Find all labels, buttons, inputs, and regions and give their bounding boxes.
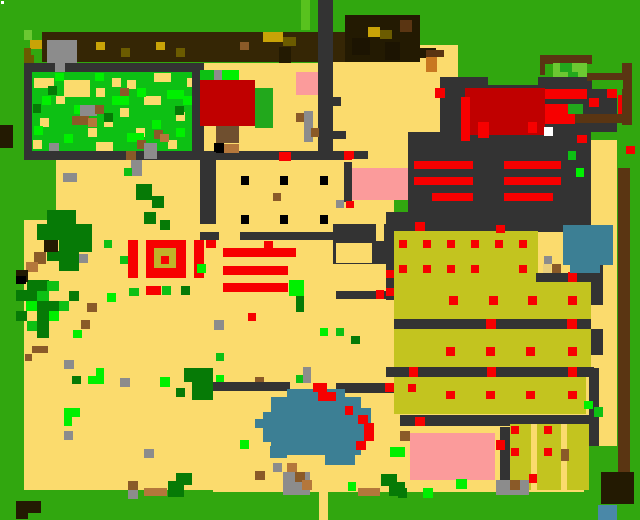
map-tile bbox=[313, 383, 327, 392]
map-tile bbox=[81, 320, 90, 329]
map-tile bbox=[37, 224, 92, 240]
map-tile bbox=[352, 159, 408, 168]
map-tile bbox=[120, 256, 128, 264]
map-tile bbox=[386, 288, 394, 296]
map-tile bbox=[561, 449, 569, 461]
map-tile bbox=[456, 479, 467, 489]
map-tile bbox=[112, 78, 121, 87]
map-tile bbox=[333, 208, 354, 224]
map-tile bbox=[426, 50, 444, 57]
map-tile bbox=[486, 347, 495, 356]
map-tile bbox=[64, 408, 72, 426]
map-tile bbox=[96, 142, 113, 151]
map-tile bbox=[48, 86, 57, 95]
map-tile bbox=[273, 463, 282, 472]
map-tile bbox=[364, 433, 374, 441]
map-tile bbox=[545, 89, 587, 99]
map-tile bbox=[197, 264, 206, 273]
map-tile bbox=[489, 296, 498, 305]
map-tile bbox=[200, 152, 216, 224]
map-tile bbox=[303, 367, 311, 383]
map-tile bbox=[386, 270, 394, 278]
map-tile bbox=[526, 347, 535, 356]
map-tile bbox=[64, 134, 73, 143]
map-tile bbox=[248, 313, 256, 321]
map-tile bbox=[200, 80, 255, 126]
map-tile bbox=[376, 290, 384, 299]
map-tile bbox=[72, 376, 81, 384]
map-tile bbox=[399, 265, 407, 273]
map-tile bbox=[95, 105, 104, 114]
map-tile bbox=[72, 116, 89, 125]
map-tile bbox=[358, 488, 380, 496]
map-tile bbox=[544, 256, 552, 264]
map-tile bbox=[175, 106, 184, 115]
map-tile bbox=[27, 321, 37, 331]
map-tile bbox=[568, 367, 577, 377]
map-tile bbox=[176, 48, 185, 57]
map-tile bbox=[64, 80, 90, 97]
map-tile bbox=[240, 42, 249, 50]
map-tile bbox=[414, 177, 473, 185]
map-tile bbox=[500, 427, 510, 482]
map-tile bbox=[107, 293, 116, 302]
map-tile bbox=[34, 126, 43, 135]
map-tile bbox=[162, 286, 171, 295]
map-tile bbox=[568, 347, 577, 356]
map-tile bbox=[311, 128, 319, 137]
map-tile bbox=[560, 63, 572, 72]
map-tile bbox=[364, 423, 374, 433]
map-tile bbox=[44, 240, 58, 252]
map-tile bbox=[96, 88, 105, 97]
map-tile bbox=[104, 113, 113, 122]
map-tile bbox=[42, 32, 345, 62]
map-tile bbox=[432, 193, 473, 201]
map-tile bbox=[345, 406, 353, 415]
map-tile bbox=[598, 505, 617, 520]
map-tile bbox=[160, 134, 169, 142]
map-tile bbox=[176, 128, 185, 137]
map-tile bbox=[304, 111, 313, 142]
map-tile bbox=[126, 151, 136, 160]
map-tile bbox=[414, 161, 473, 169]
map-tile bbox=[426, 57, 437, 72]
map-tile bbox=[543, 264, 551, 273]
map-tile bbox=[568, 151, 576, 160]
map-tile bbox=[63, 173, 77, 182]
map-tile bbox=[154, 73, 171, 82]
map-tile bbox=[25, 354, 32, 361]
map-tile bbox=[104, 240, 112, 248]
map-tile bbox=[192, 382, 213, 400]
map-tile bbox=[544, 448, 552, 456]
map-tile bbox=[446, 347, 455, 356]
map-tile bbox=[137, 88, 146, 97]
map-tile bbox=[152, 196, 164, 208]
map-tile bbox=[112, 96, 129, 105]
map-tile bbox=[540, 55, 545, 75]
map-tile bbox=[64, 431, 73, 440]
map-tile bbox=[168, 481, 184, 497]
map-tile bbox=[389, 482, 405, 496]
map-tile bbox=[486, 391, 495, 399]
map-tile bbox=[528, 122, 537, 133]
map-tile bbox=[56, 96, 65, 104]
map-tile bbox=[320, 328, 328, 336]
map-tile bbox=[241, 176, 249, 185]
map-tile bbox=[24, 63, 204, 72]
map-tile bbox=[348, 482, 356, 491]
map-tile bbox=[16, 509, 28, 519]
map-tile bbox=[591, 329, 603, 355]
map-tile bbox=[296, 72, 318, 95]
map-tile bbox=[283, 37, 296, 46]
map-tile bbox=[325, 449, 355, 465]
map-tile bbox=[519, 265, 527, 273]
map-tile bbox=[545, 114, 575, 124]
map-tile bbox=[144, 212, 156, 224]
map-tile bbox=[488, 77, 538, 85]
map-tile bbox=[255, 471, 265, 480]
map-tile bbox=[183, 96, 192, 105]
map-tile bbox=[49, 311, 59, 321]
map-tile bbox=[318, 392, 336, 401]
map-tile bbox=[415, 417, 425, 426]
map-tile bbox=[526, 391, 535, 399]
map-tile bbox=[504, 193, 553, 201]
map-tile bbox=[495, 240, 503, 248]
map-tile bbox=[575, 114, 632, 123]
map-tile bbox=[510, 480, 520, 490]
map-tile bbox=[279, 47, 291, 63]
map-tile bbox=[302, 480, 312, 490]
map-tile bbox=[423, 488, 433, 498]
map-tile bbox=[447, 265, 455, 273]
map-tile bbox=[223, 248, 296, 257]
map-tile bbox=[160, 220, 170, 230]
map-tile bbox=[96, 42, 105, 50]
map-tile bbox=[160, 377, 170, 387]
map-tile bbox=[73, 330, 82, 338]
map-tile bbox=[601, 472, 634, 504]
map-tile bbox=[42, 96, 51, 105]
map-tile bbox=[214, 320, 224, 330]
map-tile bbox=[263, 32, 283, 42]
map-tile bbox=[423, 265, 431, 273]
map-tile bbox=[69, 291, 79, 301]
map-tile bbox=[16, 290, 37, 301]
map-tile bbox=[121, 48, 130, 57]
map-tile bbox=[607, 88, 617, 98]
map-tile bbox=[124, 168, 132, 176]
map-tile bbox=[408, 384, 416, 392]
map-tile bbox=[72, 408, 80, 417]
map-tile bbox=[376, 224, 384, 241]
map-tile bbox=[37, 291, 49, 301]
map-tile bbox=[216, 353, 224, 361]
map-tile bbox=[320, 215, 328, 224]
map-tile bbox=[380, 30, 392, 39]
map-tile bbox=[336, 243, 372, 263]
map-tile bbox=[319, 468, 328, 520]
map-tile bbox=[33, 140, 42, 149]
map-tile bbox=[200, 70, 214, 80]
map-tile bbox=[187, 78, 192, 87]
map-tile bbox=[394, 231, 538, 320]
map-tile bbox=[279, 450, 287, 458]
map-tile bbox=[446, 391, 455, 399]
map-tile bbox=[144, 96, 161, 105]
map-tile bbox=[59, 301, 69, 311]
map-tile bbox=[79, 254, 88, 263]
map-tile bbox=[478, 122, 489, 138]
map-tile bbox=[161, 256, 169, 264]
map-tile bbox=[435, 88, 445, 98]
map-tile bbox=[368, 27, 380, 37]
map-tile bbox=[400, 431, 410, 441]
map-tile bbox=[333, 160, 344, 202]
map-tile bbox=[279, 152, 291, 161]
map-tile bbox=[594, 407, 603, 417]
map-tile bbox=[184, 368, 213, 382]
map-tile bbox=[351, 336, 360, 344]
game-map[interactable] bbox=[0, 0, 640, 520]
map-tile bbox=[511, 448, 519, 456]
map-tile bbox=[471, 265, 479, 273]
map-tile bbox=[568, 391, 577, 399]
map-tile bbox=[568, 272, 577, 282]
map-tile bbox=[626, 146, 635, 154]
map-tile bbox=[146, 286, 161, 295]
map-tile bbox=[95, 73, 104, 81]
map-tile bbox=[181, 286, 190, 295]
map-tile bbox=[280, 215, 288, 224]
map-tile bbox=[144, 488, 167, 496]
map-tile bbox=[219, 232, 240, 240]
map-tile bbox=[576, 168, 584, 177]
map-tile bbox=[59, 240, 69, 271]
map-tile bbox=[176, 388, 185, 397]
map-tile bbox=[55, 73, 64, 81]
map-tile bbox=[144, 143, 157, 159]
map-tile bbox=[88, 118, 97, 127]
map-tile bbox=[167, 90, 184, 99]
map-tile bbox=[529, 474, 537, 483]
map-tile bbox=[213, 382, 290, 391]
map-tile bbox=[223, 266, 288, 275]
map-tile bbox=[544, 426, 552, 434]
map-tile bbox=[32, 346, 48, 353]
map-tile bbox=[16, 311, 27, 321]
map-tile bbox=[385, 383, 394, 392]
map-tile bbox=[24, 72, 32, 160]
map-tile bbox=[30, 40, 42, 49]
map-tile bbox=[591, 200, 617, 225]
map-tile bbox=[296, 296, 304, 312]
map-tile bbox=[568, 72, 578, 77]
map-tile bbox=[240, 440, 249, 449]
map-tile bbox=[289, 280, 304, 296]
map-tile bbox=[16, 276, 26, 284]
map-tile bbox=[241, 215, 249, 224]
map-tile bbox=[64, 360, 74, 369]
map-tile bbox=[486, 319, 496, 329]
map-tile bbox=[410, 433, 495, 480]
map-tile bbox=[128, 240, 138, 278]
map-tile bbox=[563, 225, 613, 265]
map-tile bbox=[589, 98, 599, 107]
map-tile bbox=[47, 210, 76, 224]
map-tile bbox=[385, 42, 400, 60]
map-tile bbox=[263, 412, 271, 442]
map-tile bbox=[496, 440, 505, 450]
map-tile bbox=[33, 104, 41, 113]
map-tile bbox=[47, 281, 59, 291]
map-tile bbox=[552, 264, 561, 273]
map-tile bbox=[567, 319, 577, 329]
map-tile bbox=[255, 88, 273, 128]
map-tile bbox=[519, 240, 527, 248]
map-tile bbox=[449, 296, 458, 305]
map-tile bbox=[570, 265, 600, 273]
map-tile bbox=[415, 222, 425, 231]
map-tile bbox=[120, 108, 129, 117]
map-tile bbox=[144, 449, 154, 458]
map-tile bbox=[409, 367, 418, 377]
map-tile bbox=[69, 251, 79, 271]
map-tile bbox=[320, 176, 328, 185]
map-tile bbox=[592, 80, 623, 89]
map-tile bbox=[301, 0, 310, 30]
map-tile bbox=[152, 120, 161, 129]
map-tile bbox=[0, 125, 13, 148]
map-tile bbox=[344, 162, 352, 202]
map-tile bbox=[216, 126, 239, 143]
map-tile bbox=[471, 240, 479, 248]
map-tile bbox=[1, 1, 4, 4]
map-tile bbox=[544, 127, 553, 136]
map-tile bbox=[352, 38, 370, 55]
map-tile bbox=[273, 193, 281, 201]
map-tile bbox=[37, 321, 49, 338]
map-tile bbox=[222, 70, 239, 80]
map-tile bbox=[504, 161, 561, 169]
map-tile bbox=[528, 296, 537, 305]
map-tile bbox=[618, 168, 630, 472]
map-tile bbox=[487, 367, 496, 377]
map-tile bbox=[223, 283, 288, 292]
map-tile bbox=[128, 481, 138, 490]
map-tile bbox=[47, 40, 77, 63]
map-tile bbox=[584, 401, 593, 409]
map-tile bbox=[318, 0, 333, 160]
map-tile bbox=[120, 378, 130, 387]
map-tile bbox=[129, 288, 139, 296]
map-tile bbox=[511, 426, 519, 434]
map-tile bbox=[168, 140, 177, 149]
map-tile bbox=[206, 240, 216, 248]
map-tile bbox=[96, 368, 104, 376]
map-tile bbox=[568, 296, 577, 305]
map-tile bbox=[26, 301, 37, 311]
map-tile bbox=[87, 303, 97, 312]
map-tile bbox=[400, 20, 412, 32]
map-tile bbox=[577, 135, 587, 143]
map-tile bbox=[224, 144, 239, 153]
map-tile bbox=[255, 419, 263, 428]
map-tile bbox=[390, 447, 405, 457]
map-tile bbox=[399, 240, 407, 248]
map-tile bbox=[333, 97, 341, 106]
map-tile bbox=[504, 177, 561, 185]
map-tile bbox=[333, 131, 346, 139]
map-tile bbox=[447, 240, 455, 248]
map-tile bbox=[88, 376, 104, 384]
map-tile bbox=[136, 184, 152, 200]
map-tile bbox=[128, 490, 138, 499]
map-tile bbox=[336, 328, 344, 336]
map-tile bbox=[536, 282, 591, 320]
map-tile bbox=[352, 168, 408, 200]
map-tile bbox=[131, 160, 142, 176]
map-tile bbox=[24, 30, 32, 40]
map-tile bbox=[280, 176, 288, 185]
map-tile bbox=[461, 97, 470, 141]
map-tile bbox=[156, 42, 165, 50]
map-tile bbox=[356, 441, 366, 450]
map-tile bbox=[423, 240, 431, 248]
map-tile bbox=[88, 128, 97, 137]
map-tile bbox=[496, 225, 505, 233]
map-tile bbox=[24, 151, 368, 160]
map-tile bbox=[120, 88, 129, 96]
map-tile bbox=[47, 251, 59, 261]
